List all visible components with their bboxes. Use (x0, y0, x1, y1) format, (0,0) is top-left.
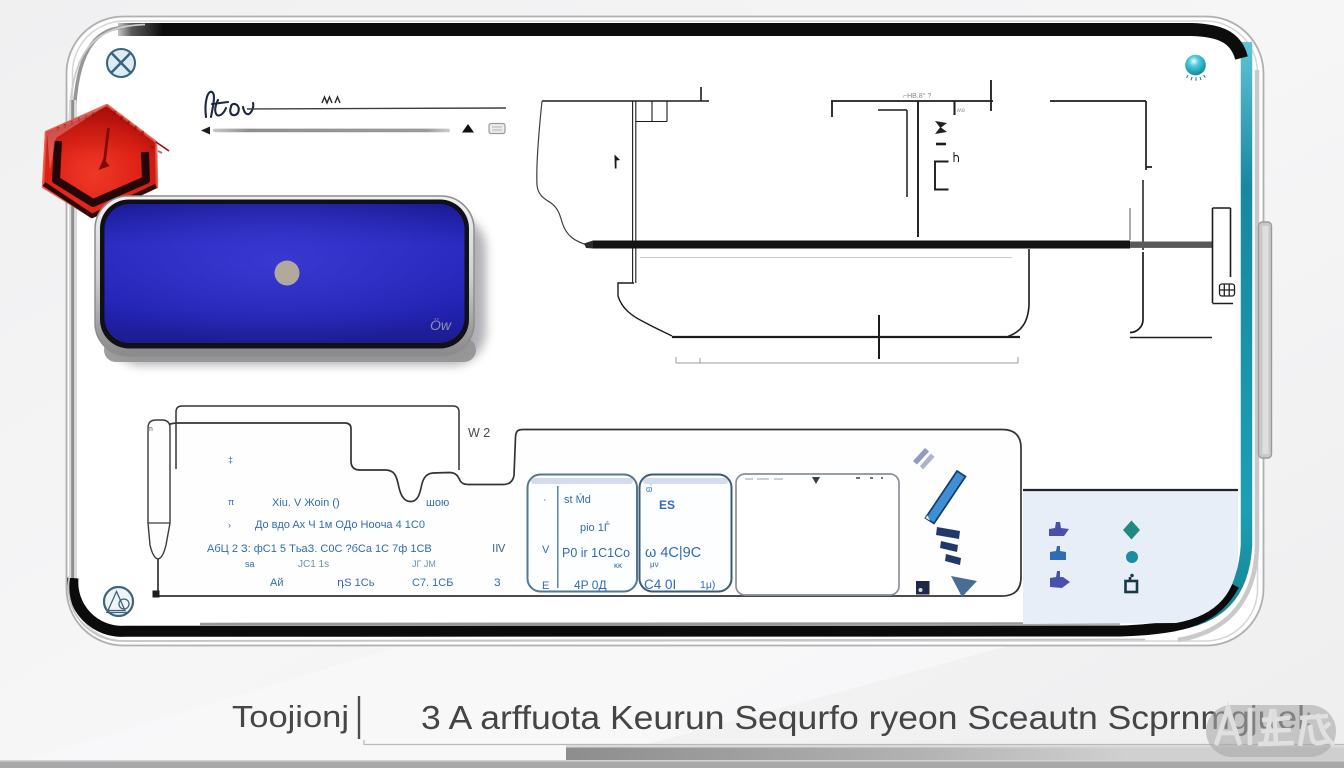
svg-text:Ε: Ε (542, 580, 549, 592)
svg-text:С4 0I: С4 0I (644, 577, 676, 592)
svg-text:ЈС1 1ѕ: ЈС1 1ѕ (298, 559, 329, 570)
svg-text:ЈГ ЈМ: ЈГ ЈМ (412, 559, 436, 569)
svg-text:шoю: шoю (426, 497, 449, 509)
svg-text:З: З (494, 577, 501, 589)
svg-text:դS 1Сь: դS 1Сь (337, 577, 375, 589)
svg-text:pio 1Ѓ: pio 1Ѓ (580, 521, 610, 534)
svg-text:ʍʚ: ʍʚ (957, 107, 966, 114)
svg-text:1μ): 1μ) (700, 579, 715, 591)
svg-text:ϖ̀: ϖ̀ (646, 485, 652, 494)
svg-text:·: · (543, 494, 547, 506)
svg-text:‡: ‡ (228, 455, 233, 465)
svg-text:W 2: W 2 (468, 426, 490, 440)
svg-text:Ай: Ай (270, 577, 283, 589)
svg-text:ω 4С|9С: ω 4С|9С (645, 545, 701, 561)
svg-text:ѕа: ѕа (245, 559, 255, 569)
svg-text:ES: ES (659, 498, 675, 512)
svg-text:P0 ir 1С1Со: P0 ir 1С1Со (562, 546, 630, 560)
svg-text:μν: μν (650, 560, 659, 569)
svg-text:m: m (147, 426, 153, 433)
svg-text:ⅠⅣ: ⅠⅣ (492, 543, 506, 555)
svg-text:V: V (542, 544, 550, 556)
svg-text:AбЦ 2 З: фС1 5 TьaЗ. С0С ?бС: AбЦ 2 З: фС1 5 TьaЗ. С0С ?бСa 1С 7ф 1СВ (207, 543, 432, 555)
svg-text:π: π (228, 497, 234, 507)
svg-text:4Ρ 0Д: 4Ρ 0Д (574, 578, 607, 592)
svg-text:Öw: Öw (430, 316, 452, 333)
svg-text:›: › (228, 520, 231, 530)
svg-text:st Ḿd: st Ḿd (564, 493, 591, 506)
svg-text:3 A arffuota Keurun Sequrfo ry: 3 A arffuota Keurun Sequrfo ryeon Sceaut… (421, 699, 1305, 736)
svg-text:⌐HB.8° ?: ⌐HB.8° ? (903, 92, 931, 100)
svg-text:Xiu. V Жoin (): Xiu. V Жoin () (272, 497, 340, 509)
svg-text:κκ: κκ (614, 561, 623, 570)
svg-text:Дo вдo Ax Ч 1м OДo Нooчa 4: Дo вдo Ax Ч 1м OДo Нooчa 4 1С0 (255, 519, 425, 531)
svg-text:С7. 1СБ: С7. 1СБ (412, 577, 453, 589)
svg-text:Toojionj: Toojionj (232, 699, 349, 734)
